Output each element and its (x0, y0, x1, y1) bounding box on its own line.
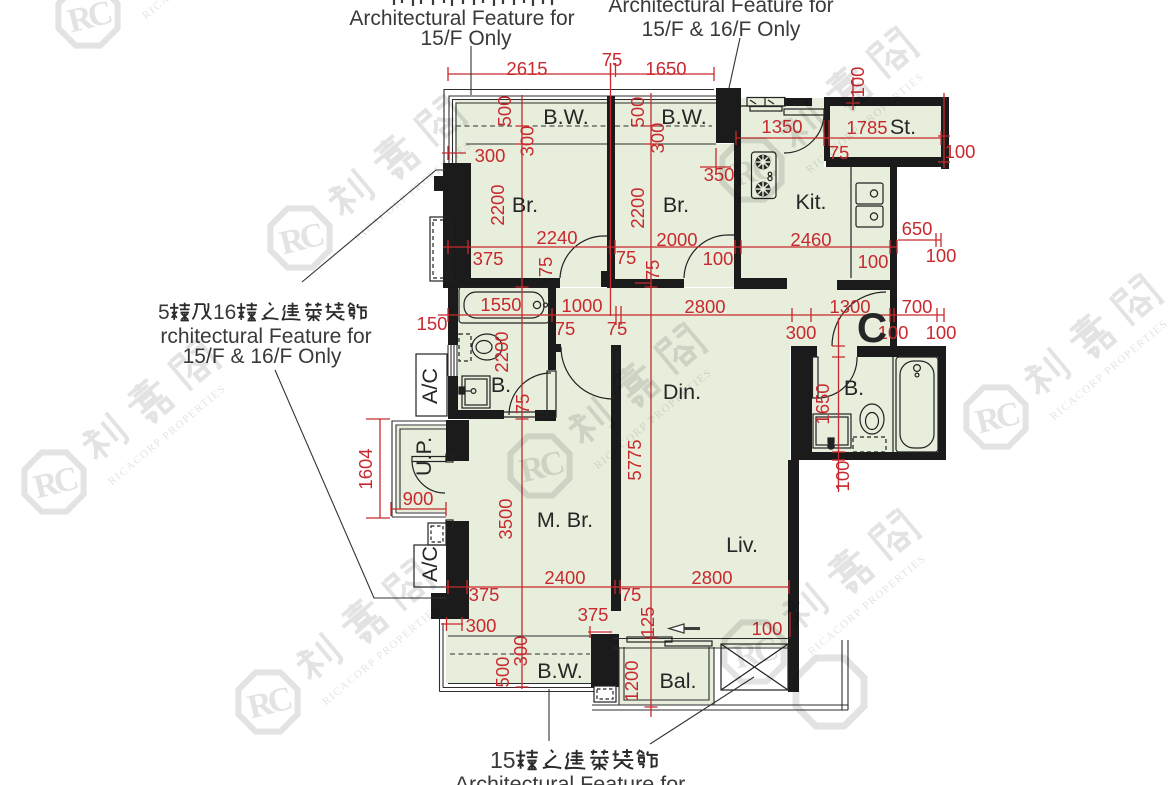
svg-text:B.W.: B.W. (661, 105, 706, 129)
svg-text:100: 100 (926, 245, 957, 266)
svg-text:500: 500 (494, 96, 515, 127)
svg-text:2000: 2000 (656, 229, 697, 250)
svg-text:15/F Only: 15/F Only (420, 27, 512, 50)
svg-text:100: 100 (858, 251, 889, 272)
svg-text:300: 300 (510, 636, 531, 667)
svg-text:75: 75 (555, 318, 576, 339)
svg-text:2400: 2400 (544, 567, 585, 588)
svg-text:1550: 1550 (480, 294, 521, 315)
svg-text:Architectural Feature for: Architectural Feature for (608, 0, 833, 17)
svg-text:Kit.: Kit. (795, 190, 826, 214)
svg-text:375: 375 (578, 604, 609, 625)
svg-text:C: C (857, 304, 887, 351)
svg-text:300: 300 (466, 615, 497, 636)
svg-text:100: 100 (703, 248, 734, 269)
svg-text:300: 300 (786, 322, 817, 343)
svg-text:1650: 1650 (645, 58, 686, 79)
svg-text:100: 100 (945, 141, 976, 162)
svg-text:300: 300 (517, 126, 538, 157)
svg-text:B.W.: B.W. (543, 105, 588, 129)
svg-text:75: 75 (535, 257, 556, 278)
svg-text:Architectural Feature for: Architectural Feature for (455, 772, 686, 785)
svg-text:900: 900 (403, 488, 434, 509)
svg-text:5: 5 (158, 301, 170, 324)
svg-text:75: 75 (642, 260, 663, 281)
svg-text:75: 75 (616, 247, 637, 268)
svg-text:75: 75 (512, 394, 533, 415)
svg-text:1650: 1650 (812, 383, 833, 424)
svg-text:M. Br.: M. Br. (537, 508, 593, 532)
svg-text:Bal.: Bal. (659, 669, 696, 693)
svg-text:U.P.: U.P. (412, 437, 436, 476)
svg-text:1604: 1604 (355, 448, 376, 489)
svg-text:A/C: A/C (418, 368, 442, 404)
svg-text:1000: 1000 (561, 295, 602, 316)
svg-text:650: 650 (902, 218, 933, 239)
svg-text:150: 150 (417, 313, 448, 334)
svg-text:2800: 2800 (684, 296, 725, 317)
svg-text:375: 375 (469, 584, 500, 605)
svg-text:2460: 2460 (790, 229, 831, 250)
svg-text:375: 375 (473, 248, 504, 269)
svg-text:125: 125 (637, 607, 658, 638)
svg-text:Br.: Br. (663, 193, 689, 217)
svg-text:2200: 2200 (491, 331, 512, 372)
svg-text:2615: 2615 (506, 58, 547, 79)
svg-text:B.: B. (491, 373, 511, 397)
svg-text:75: 75 (602, 49, 623, 70)
svg-text:16: 16 (213, 301, 236, 324)
svg-text:A/C: A/C (418, 546, 442, 582)
svg-text:B.: B. (844, 376, 864, 400)
svg-text:B.W.: B.W. (537, 659, 582, 683)
svg-text:2200: 2200 (627, 187, 648, 228)
svg-text:700: 700 (902, 296, 933, 317)
svg-text:2800: 2800 (691, 567, 732, 588)
svg-text:100: 100 (832, 461, 853, 492)
svg-text:100: 100 (926, 322, 957, 343)
svg-text:15/F & 16/F Only: 15/F & 16/F Only (642, 18, 801, 41)
svg-text:St.: St. (890, 115, 916, 139)
svg-text:Liv.: Liv. (726, 533, 758, 557)
svg-text:300: 300 (475, 145, 506, 166)
svg-text:3500: 3500 (495, 498, 516, 539)
svg-text:15: 15 (490, 747, 516, 773)
svg-text:75: 75 (621, 584, 642, 605)
svg-text:Br.: Br. (512, 193, 538, 217)
svg-text:2200: 2200 (487, 184, 508, 225)
svg-text:1200: 1200 (621, 660, 642, 701)
svg-text:2240: 2240 (536, 227, 577, 248)
svg-text:75: 75 (607, 318, 628, 339)
svg-text:500: 500 (627, 97, 648, 128)
